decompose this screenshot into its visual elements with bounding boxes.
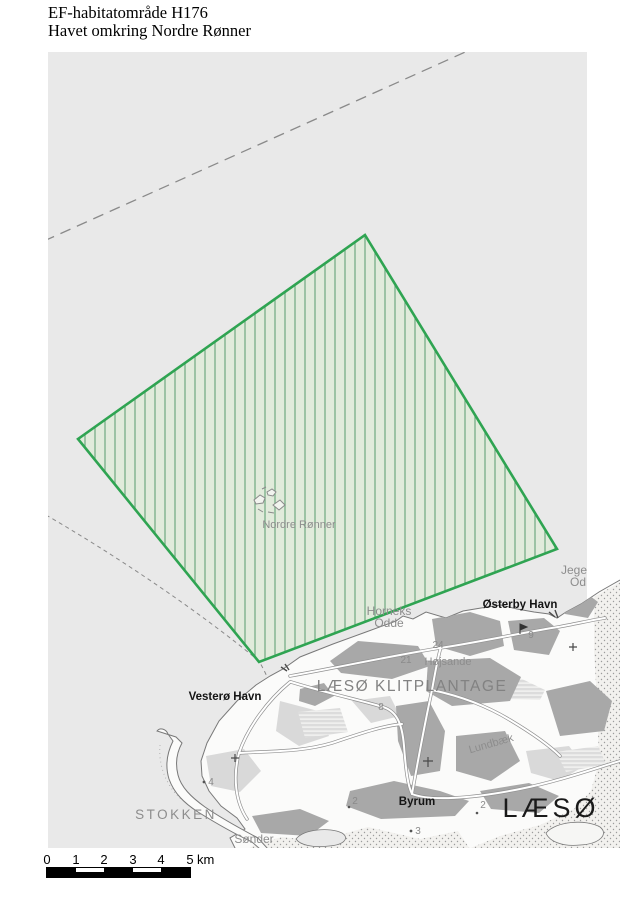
scale-tick-3: 3 xyxy=(129,852,136,867)
label-24: 24 xyxy=(432,640,444,651)
scale-tick-0: 0 xyxy=(43,852,50,867)
title-line-2: Havet omkring Nordre Rønner xyxy=(48,22,251,40)
title-line-1: EF-habitatområde H176 xyxy=(48,4,251,22)
label-21: 21 xyxy=(400,655,412,666)
label-4: 4 xyxy=(208,777,214,788)
scale-tick-5: 5 xyxy=(186,852,193,867)
label-road-8: 8 xyxy=(378,702,384,713)
label-laeso: LÆSØ xyxy=(502,793,599,823)
label-jege-2: Od xyxy=(570,575,586,589)
label-klitplantage: LÆSØ KLITPLANTAGE xyxy=(317,678,508,695)
point-dot xyxy=(348,806,351,809)
scale-bar-graphic xyxy=(46,867,191,878)
label-hojsande: Højsande xyxy=(424,656,471,668)
point-dot xyxy=(410,830,413,833)
scale-unit: km xyxy=(197,852,214,867)
label-3: 3 xyxy=(415,826,421,837)
scale-tick-1: 1 xyxy=(72,852,79,867)
label-sonder: Sønder xyxy=(234,832,273,846)
scale-tick-2: 2 xyxy=(100,852,107,867)
point-dot xyxy=(203,781,206,784)
label-2: 2 xyxy=(352,796,358,807)
label-vestero-havn: Vesterø Havn xyxy=(189,691,262,703)
scale-bar: 0 1 2 3 4 5 km xyxy=(0,851,300,887)
label-nordre-ronner: Nordre Rønner xyxy=(262,519,336,531)
label-byrum: Byrum xyxy=(399,796,435,808)
scale-tick-4: 4 xyxy=(157,852,164,867)
map-canvas: Nordre Rønner Vesterø Havn Østerby Havn … xyxy=(48,52,620,848)
label-2b: 2 xyxy=(480,800,486,811)
label-stokken: STOKKEN xyxy=(135,807,217,822)
label-road-9: 9 xyxy=(528,630,534,641)
page-title: EF-habitatområde H176 Havet omkring Nord… xyxy=(48,4,251,40)
label-horneks-2: Odde xyxy=(374,616,404,630)
point-dot xyxy=(476,812,479,815)
label-osterby-havn: Østerby Havn xyxy=(483,599,558,611)
document-page: EF-habitatområde H176 Havet omkring Nord… xyxy=(0,0,636,900)
